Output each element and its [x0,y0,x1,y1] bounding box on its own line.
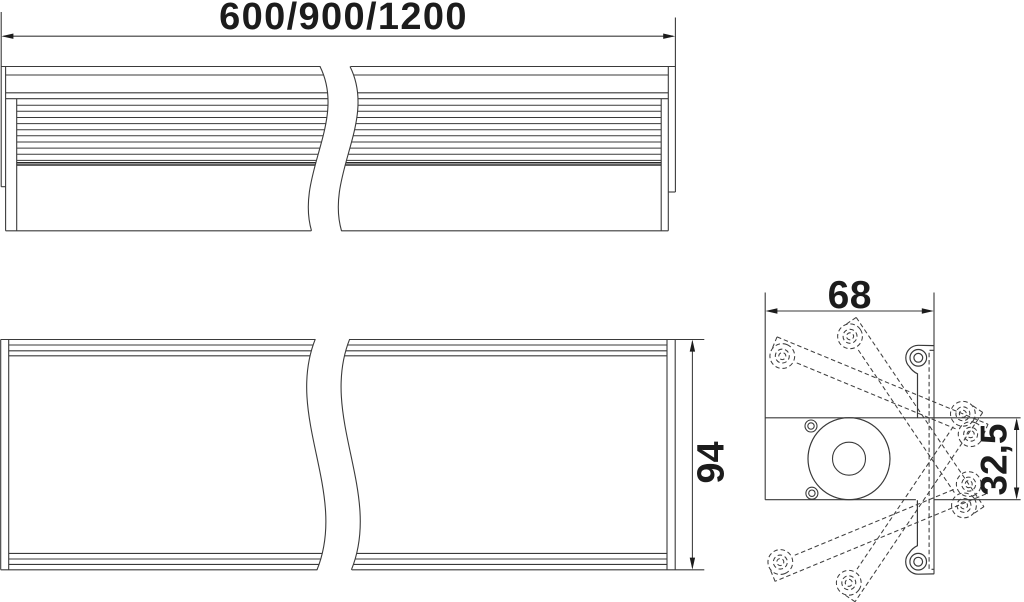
svg-text:94: 94 [691,441,733,483]
svg-text:32,5: 32,5 [974,423,1015,495]
svg-text:600/900/1200: 600/900/1200 [219,0,468,38]
svg-text:68: 68 [828,274,872,317]
